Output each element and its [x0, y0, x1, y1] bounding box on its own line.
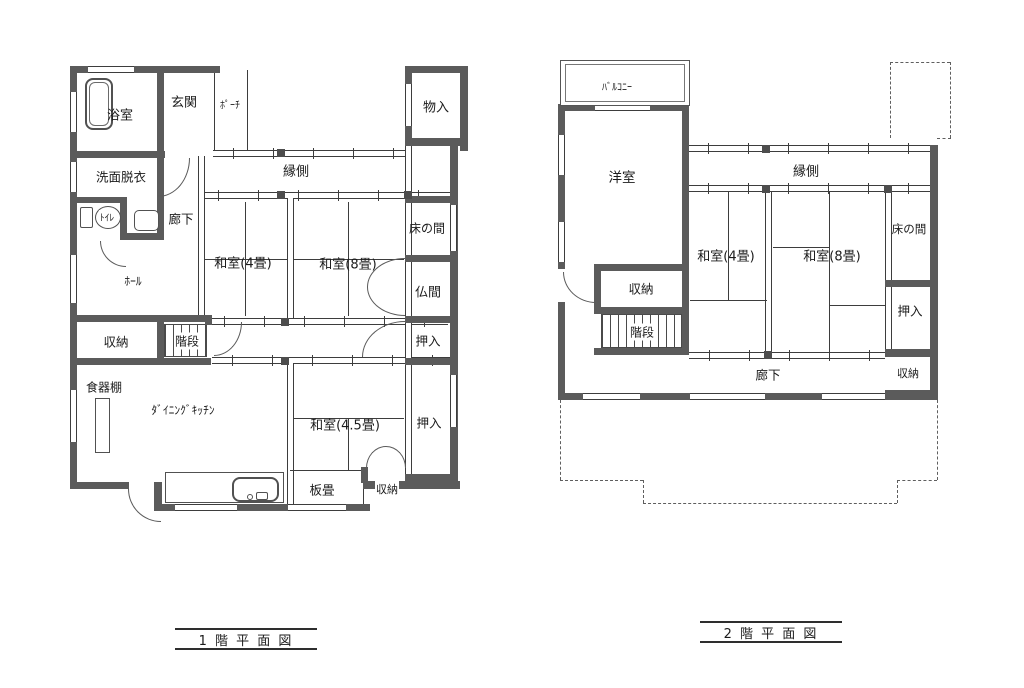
- wall-segment: [765, 393, 822, 400]
- pillar: [281, 357, 289, 365]
- room-label-engawa: 縁側: [793, 161, 819, 180]
- room-label-dining_kitchen: ﾀﾞｲﾆﾝｸﾞｷｯﾁﾝ: [151, 402, 214, 418]
- partition-line: [247, 70, 248, 151]
- room-label-butsuma: 仏間: [415, 282, 441, 301]
- room-label-entry: 玄関: [171, 92, 197, 111]
- room-label-hall: ﾎｰﾙ: [124, 273, 141, 289]
- window: [822, 393, 885, 400]
- door-swing-arc: [386, 446, 406, 468]
- floor1-title: 1 階 平 面 図: [199, 630, 294, 649]
- pillar: [762, 145, 770, 153]
- lower-floor-outline-dashed: [937, 138, 951, 139]
- room-label-washitsu4: 和室(4畳): [214, 253, 271, 272]
- room-label-balcony: ﾊﾞﾙｺﾆｰ: [602, 79, 632, 94]
- floor2-title-block: 2 階 平 面 図: [700, 621, 842, 643]
- toilet-tank: [80, 207, 93, 228]
- door-swing-arc: [158, 158, 190, 197]
- room-label-tokonoma: 床の間: [409, 220, 445, 237]
- lower-floor-outline-dashed: [560, 400, 561, 480]
- door-swing-arc: [128, 489, 161, 522]
- room-label-washitsu8: 和室(8畳): [319, 254, 376, 273]
- window: [175, 504, 237, 511]
- wall-segment: [157, 66, 164, 158]
- wall-segment: [640, 393, 690, 400]
- window: [70, 390, 77, 442]
- wall-segment: [885, 349, 938, 357]
- door-swing-arc: [362, 321, 405, 357]
- cupboard: [95, 398, 110, 453]
- partition-double-line: [765, 192, 772, 352]
- room-label-engawa: 縁側: [283, 161, 309, 180]
- window: [70, 92, 77, 132]
- pillar: [277, 191, 285, 199]
- pillar: [764, 351, 772, 359]
- window: [70, 162, 77, 192]
- room-label-stairs: 階段: [174, 333, 200, 350]
- door-swing-arc: [214, 322, 242, 356]
- line-tick: [272, 355, 273, 366]
- line-tick: [304, 316, 305, 327]
- pillar: [884, 185, 892, 193]
- wall-segment: [594, 348, 689, 355]
- window: [405, 84, 412, 126]
- room-label-washitsu4: 和室(4畳): [697, 246, 754, 265]
- room-label-oshiire: 押入: [897, 301, 922, 320]
- partition-double-line: [287, 198, 294, 318]
- line-tick: [868, 183, 869, 194]
- wall-segment: [405, 358, 457, 365]
- wall-segment: [405, 474, 457, 481]
- wall-segment: [558, 302, 565, 400]
- room-label-corridor: 廊下: [168, 209, 193, 228]
- line-tick: [748, 143, 749, 154]
- room-label-bath: 浴室: [107, 105, 133, 124]
- wall-segment: [361, 467, 368, 483]
- floor1-title-block: 1 階 平 面 図: [175, 628, 317, 650]
- room-label-storage_top: 物入: [423, 97, 449, 116]
- partition-double-line: [287, 363, 294, 504]
- wall-segment: [120, 233, 164, 240]
- lower-floor-outline-dashed: [897, 480, 937, 481]
- line-tick: [218, 190, 219, 201]
- lower-floor-outline-dashed: [937, 400, 938, 480]
- wall-segment: [120, 203, 127, 234]
- pillar: [762, 185, 770, 193]
- partition-double-line: [405, 323, 412, 358]
- room-label-yoshitsu: 洋室: [609, 166, 636, 186]
- partition-double-line: [213, 150, 405, 157]
- line-tick: [869, 350, 870, 361]
- line-tick: [788, 183, 789, 194]
- line-tick: [338, 190, 339, 201]
- line-tick: [908, 183, 909, 194]
- line-tick: [312, 355, 313, 366]
- wall-segment: [558, 393, 583, 400]
- room-label-toilet: ﾄｲﾚ: [99, 210, 115, 224]
- wall-segment: [930, 145, 938, 400]
- window: [558, 135, 565, 175]
- room-label-washroom: 洗面脱衣: [96, 167, 146, 186]
- room-label-oshiire_mid: 押入: [415, 331, 440, 350]
- line-tick: [264, 316, 265, 327]
- room-label-itajiki: 板畳: [309, 480, 334, 499]
- room-label-cupboard: 食器棚: [85, 379, 123, 396]
- room-label-shuno_bottom: 収納: [375, 481, 399, 497]
- partition-double-line: [885, 190, 892, 349]
- partition-double-line: [198, 156, 205, 318]
- partition-line: [214, 73, 215, 151]
- wall-segment: [70, 197, 127, 203]
- door-swing-arc: [366, 446, 386, 468]
- room-label-tokonoma: 床の間: [892, 221, 927, 237]
- wall-segment: [70, 315, 211, 322]
- line-tick: [273, 148, 274, 159]
- line-tick: [708, 183, 709, 194]
- pillar: [281, 318, 289, 326]
- door-swing-arc: [367, 287, 405, 316]
- partition-double-line: [688, 185, 938, 192]
- wall-segment: [405, 255, 457, 262]
- pillar: [404, 191, 412, 199]
- lower-floor-outline-dashed: [643, 480, 644, 503]
- partition-line: [829, 192, 830, 352]
- wall-segment: [682, 104, 689, 355]
- wall-segment: [594, 307, 689, 314]
- room-label-shuno_hall: 収納: [103, 332, 128, 351]
- lower-floor-outline-dashed: [897, 480, 898, 503]
- partition-double-line: [688, 145, 938, 152]
- window: [450, 375, 457, 427]
- wall-segment: [405, 66, 412, 84]
- line-tick: [352, 355, 353, 366]
- room-label-oshiire_low: 押入: [416, 413, 441, 432]
- wall-segment: [885, 280, 938, 287]
- partition-line: [290, 470, 363, 471]
- window: [288, 504, 346, 511]
- lower-floor-outline-dashed: [950, 62, 951, 138]
- room-label-stairs: 階段: [629, 324, 655, 341]
- line-tick: [393, 148, 394, 159]
- lower-floor-outline-dashed: [890, 62, 891, 138]
- faucet: [256, 492, 268, 500]
- room-label-washitsu8: 和室(8畳): [803, 246, 860, 265]
- door-swing-arc: [563, 272, 596, 303]
- window: [690, 393, 765, 400]
- partition-double-line: [405, 146, 412, 196]
- wall-segment: [205, 315, 212, 325]
- partition-double-line: [405, 262, 412, 316]
- line-tick: [828, 143, 829, 154]
- window: [583, 393, 640, 400]
- line-tick: [788, 143, 789, 154]
- line-tick: [344, 316, 345, 327]
- room-label-shuno_left: 収納: [628, 279, 653, 298]
- wall-segment: [405, 66, 468, 73]
- floor2-title: 2 階 平 面 図: [724, 623, 819, 642]
- window: [70, 255, 77, 303]
- line-tick: [298, 190, 299, 201]
- partition-line: [690, 300, 767, 301]
- room-label-porch: ﾎﾟｰﾁ: [220, 97, 240, 112]
- wall-segment: [405, 316, 457, 323]
- window: [558, 222, 565, 262]
- wall-segment: [594, 264, 689, 271]
- line-tick: [258, 190, 259, 201]
- line-tick: [908, 143, 909, 154]
- line-tick: [313, 148, 314, 159]
- washbasin: [134, 210, 159, 231]
- wall-segment: [70, 482, 129, 489]
- pillar: [277, 149, 285, 157]
- line-tick: [789, 350, 790, 361]
- wall-segment: [70, 151, 165, 158]
- floorplan-canvas: 1 階 平 面 図 2 階 平 面 図 浴室玄関ﾎﾟｰﾁ物入洗面脱衣ﾄｲﾚ廊下縁…: [0, 0, 1024, 688]
- door-swing-arc: [100, 241, 126, 267]
- faucet-knob: [247, 494, 253, 500]
- wall-segment: [405, 126, 412, 140]
- line-tick: [233, 148, 234, 159]
- line-tick: [868, 143, 869, 154]
- partition-double-line: [405, 363, 412, 474]
- lower-floor-outline-dashed: [643, 503, 897, 504]
- wall-segment: [885, 393, 938, 400]
- line-tick: [749, 350, 750, 361]
- line-tick: [708, 143, 709, 154]
- window: [88, 66, 134, 73]
- room-label-corridor: 廊下: [755, 365, 780, 384]
- wall-segment: [405, 196, 457, 203]
- line-tick: [709, 350, 710, 361]
- window: [450, 205, 457, 251]
- room-label-washitsu45: 和室(4.5畳): [310, 415, 380, 434]
- lower-floor-outline-dashed: [560, 480, 643, 481]
- line-tick: [353, 148, 354, 159]
- partition-double-line: [689, 352, 885, 359]
- partition-line: [829, 305, 885, 306]
- wall-segment: [70, 358, 211, 365]
- wall-segment: [405, 138, 468, 146]
- lower-floor-outline-dashed: [890, 62, 950, 63]
- line-tick: [748, 183, 749, 194]
- line-tick: [378, 190, 379, 201]
- wall-segment: [157, 322, 164, 359]
- line-tick: [232, 355, 233, 366]
- room-label-shuno_right: 収納: [896, 365, 920, 381]
